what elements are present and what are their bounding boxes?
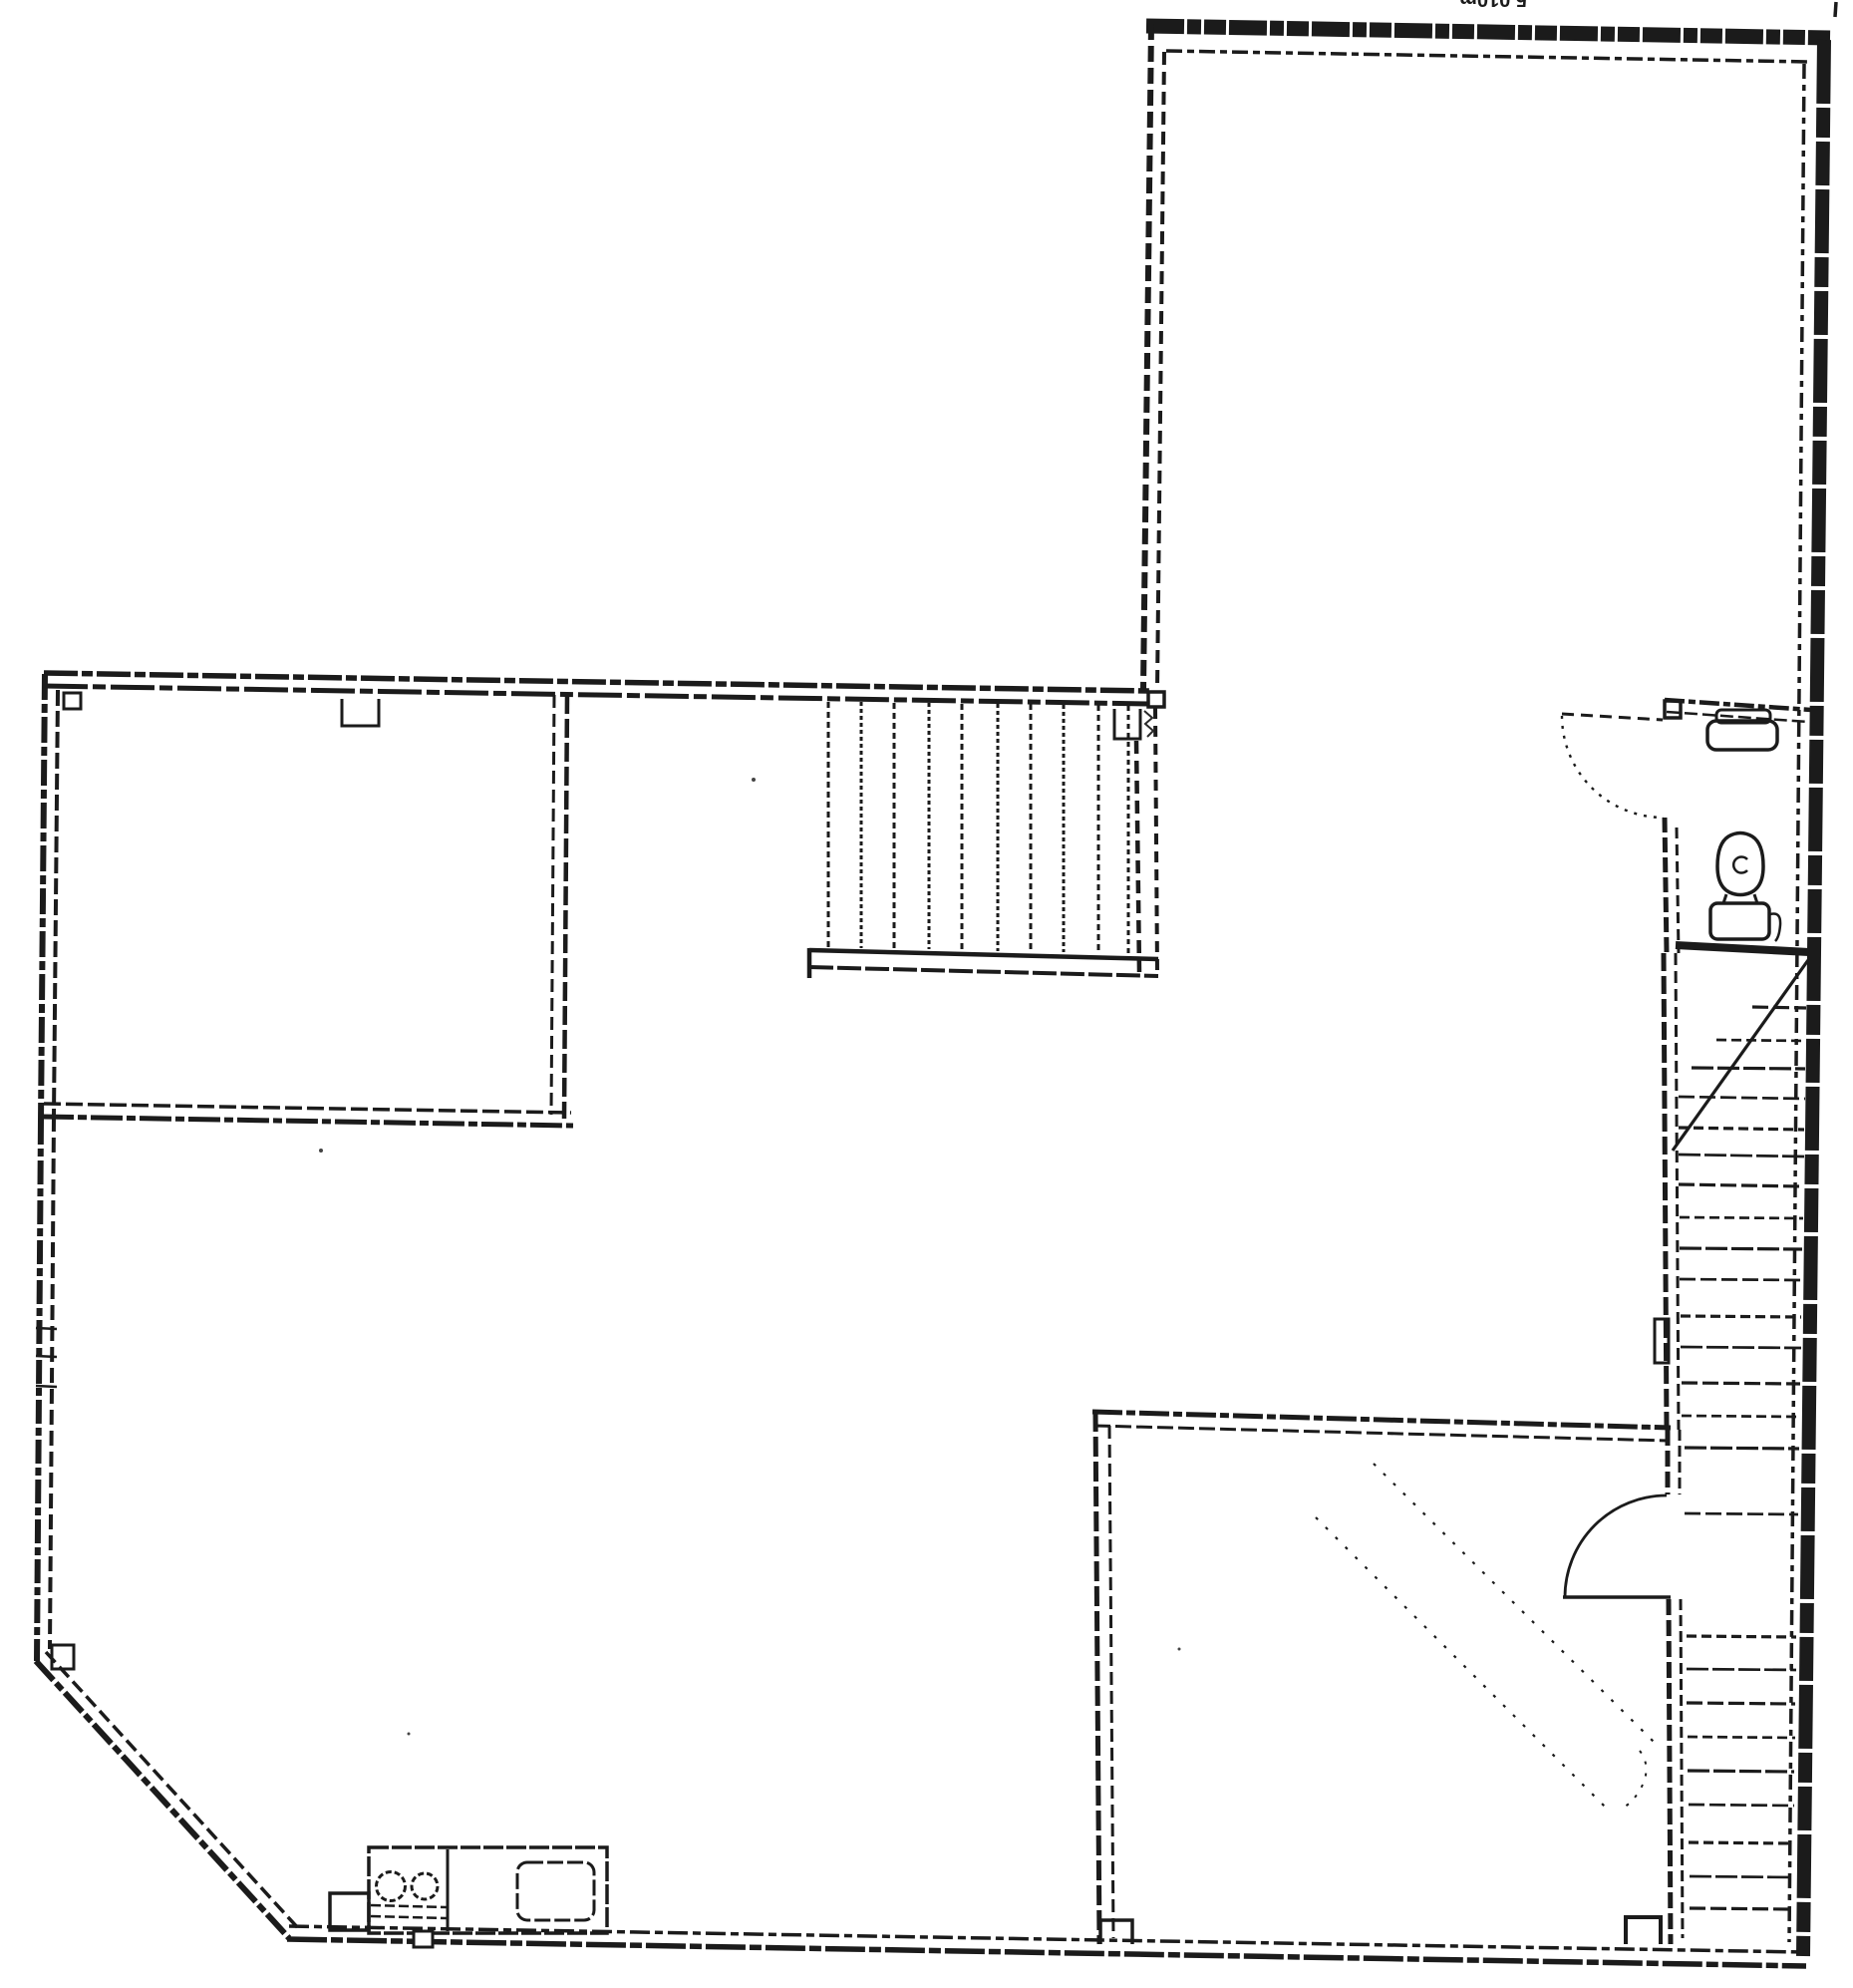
svg-text:5.010m: 5.010m [1459,0,1527,10]
